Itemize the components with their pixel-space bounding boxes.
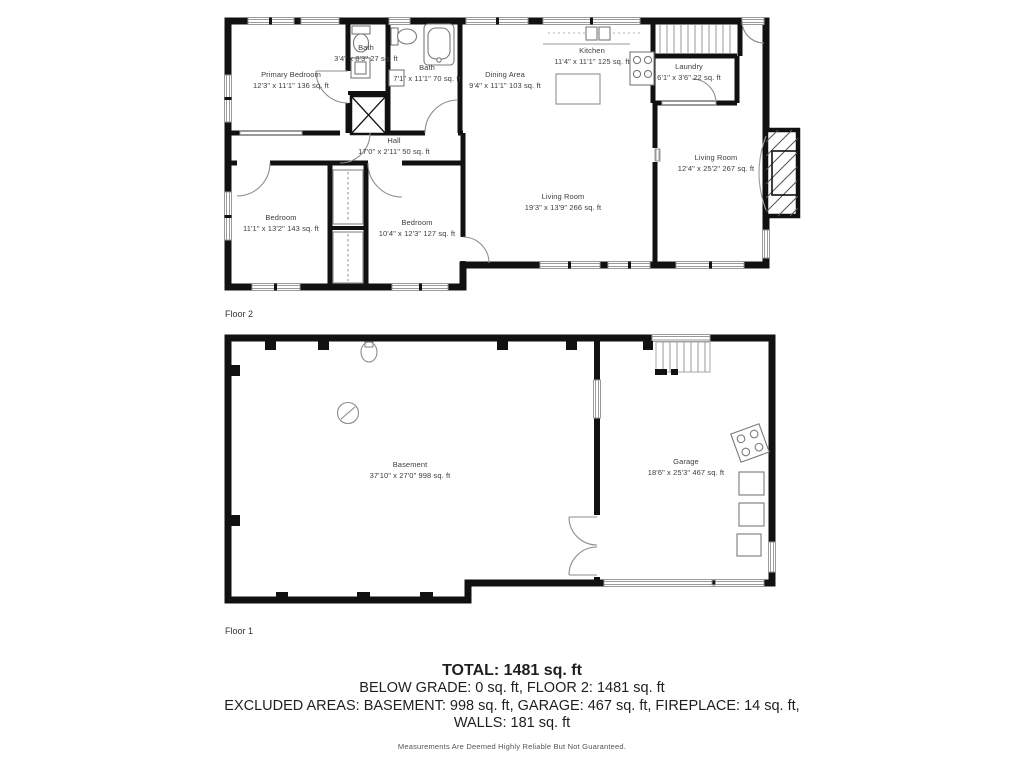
basement-garage-double-door <box>569 517 597 575</box>
bedroom-right-door-arc <box>368 163 402 197</box>
room-name: Dining Area <box>469 69 541 80</box>
room-name: Basement <box>370 459 451 470</box>
room-name: Bath <box>334 42 398 53</box>
room-label-basement: Basement 37'10" x 27'0" 998 sq. ft <box>370 459 451 482</box>
summary-line-1: BELOW GRADE: 0 sq. ft, FLOOR 2: 1481 sq.… <box>0 680 1024 698</box>
room-label-dining-area: Dining Area 9'4" x 11'1" 103 sq. ft <box>469 69 541 92</box>
room-dims: 6'1" x 3'6" 22 sq. ft <box>657 72 721 83</box>
divider-window <box>594 380 601 418</box>
room-label-garage: Garage 18'6" x 25'3" 467 sq. ft <box>648 456 724 479</box>
living-room-door-arc <box>463 237 489 263</box>
basement-fixtures <box>338 342 378 424</box>
room-dims: 19'3" x 13'9" 266 sq. ft <box>525 202 601 213</box>
room-dims: 3'4" x 8'3" 27 sq. ft <box>334 53 398 64</box>
room-dims: 37'10" x 27'0" 998 sq. ft <box>370 470 451 481</box>
room-name: Kitchen <box>554 45 629 56</box>
toilet2-bowl <box>398 29 417 44</box>
furnace-icon <box>731 424 769 462</box>
room-name: Bath <box>393 62 460 73</box>
floorplan-drawing <box>0 0 1024 768</box>
room-name: Laundry <box>657 61 721 72</box>
room-dims: 11'1" x 13'2" 143 sq. ft <box>243 223 319 234</box>
room-name: Living Room <box>525 191 601 202</box>
garage-storage-box <box>739 472 764 495</box>
garage-stairs <box>655 342 710 375</box>
summary-disclaimer: Measurements Are Deemed Highly Reliable … <box>0 742 1024 751</box>
room-dims: 12'4" x 25'2" 267 sq. ft <box>678 163 754 174</box>
summary-total: TOTAL: 1481 sq. ft <box>0 662 1024 680</box>
toilet-tank <box>352 26 370 34</box>
support-column-icon <box>338 403 359 424</box>
room-label-bedroom-left: Bedroom 11'1" x 13'2" 143 sq. ft <box>243 212 319 235</box>
room-label-laundry: Laundry 6'1" x 3'6" 22 sq. ft <box>657 61 721 84</box>
room-dims: 11'4" x 11'1" 125 sq. ft <box>554 56 629 67</box>
room-label-living-room-right: Living Room 12'4" x 25'2" 267 sq. ft <box>678 152 754 175</box>
room-label-bath-large: Bath 7'1" x 11'1" 70 sq. ft <box>393 62 460 85</box>
bath-large-door-arc <box>425 100 458 133</box>
room-name: Primary Bedroom <box>253 69 329 80</box>
room-dims: 17'0" x 2'11" 50 sq. ft <box>358 146 430 157</box>
summary-line-3: WALLS: 181 sq. ft <box>0 715 1024 733</box>
room-label-bath-small: Bath 3'4" x 8'3" 27 sq. ft <box>334 42 398 65</box>
room-label-kitchen: Kitchen 11'4" x 11'1" 125 sq. ft <box>554 45 629 68</box>
garage-storage-box <box>737 534 761 556</box>
room-label-living-room-center: Living Room 19'3" x 13'9" 266 sq. ft <box>525 191 601 214</box>
room-label-bedroom-right: Bedroom 10'4" x 12'3" 127 sq. ft <box>379 217 455 240</box>
summary-line-2: EXCLUDED AREAS: BASEMENT: 998 sq. ft, GA… <box>0 698 1024 716</box>
room-label-hall: Hall 17'0" x 2'11" 50 sq. ft <box>358 135 430 158</box>
kitchen-sink <box>586 27 597 40</box>
room-name: Living Room <box>678 152 754 163</box>
room-dims: 9'4" x 11'1" 103 sq. ft <box>469 80 541 91</box>
floor1-caption: Floor 1 <box>225 626 253 636</box>
linen-closet <box>351 96 386 134</box>
room-dims: 18'6" x 25'3" 467 sq. ft <box>648 467 724 478</box>
room-name: Bedroom <box>379 217 455 228</box>
room-name: Hall <box>358 135 430 146</box>
room-dims: 7'1" x 11'1" 70 sq. ft <box>393 73 460 84</box>
room-dims: 10'4" x 12'3" 127 sq. ft <box>379 228 455 239</box>
garage-top-window <box>652 335 710 342</box>
floor2-caption: Floor 2 <box>225 309 253 319</box>
room-name: Bedroom <box>243 212 319 223</box>
room-label-primary-bedroom: Primary Bedroom 12'3" x 11'1" 136 sq. ft <box>253 69 329 92</box>
floorplan-page: Primary Bedroom 12'3" x 11'1" 136 sq. ft… <box>0 0 1024 768</box>
closets <box>333 96 386 283</box>
garage-storage-box <box>739 503 764 526</box>
area-summary: TOTAL: 1481 sq. ft BELOW GRADE: 0 sq. ft… <box>0 662 1024 751</box>
room-dims: 12'3" x 11'1" 136 sq. ft <box>253 80 329 91</box>
kitchen-island <box>556 74 600 104</box>
garage-equipment <box>731 424 769 556</box>
garage-door <box>604 580 764 587</box>
basement-fixture <box>361 342 377 362</box>
room-name: Garage <box>648 456 724 467</box>
bedroom-left-door-arc <box>237 163 270 196</box>
fireplace <box>759 130 798 216</box>
floor2-stairs <box>660 25 730 53</box>
